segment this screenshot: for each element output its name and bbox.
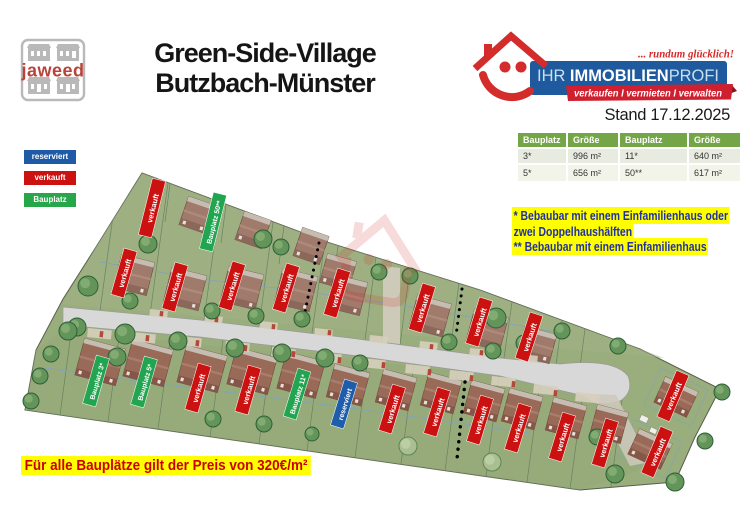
svg-text:... rundum glücklich!: ... rundum glücklich! [638, 49, 734, 61]
svg-text:jaweed: jaweed [20, 61, 84, 81]
svg-text:IHR IMMOBILIENPROFI: IHR IMMOBILIENPROFI [537, 66, 719, 85]
svg-text:verkaufen I vermieten I verwal: verkaufen I vermieten I verwalten [574, 88, 722, 100]
